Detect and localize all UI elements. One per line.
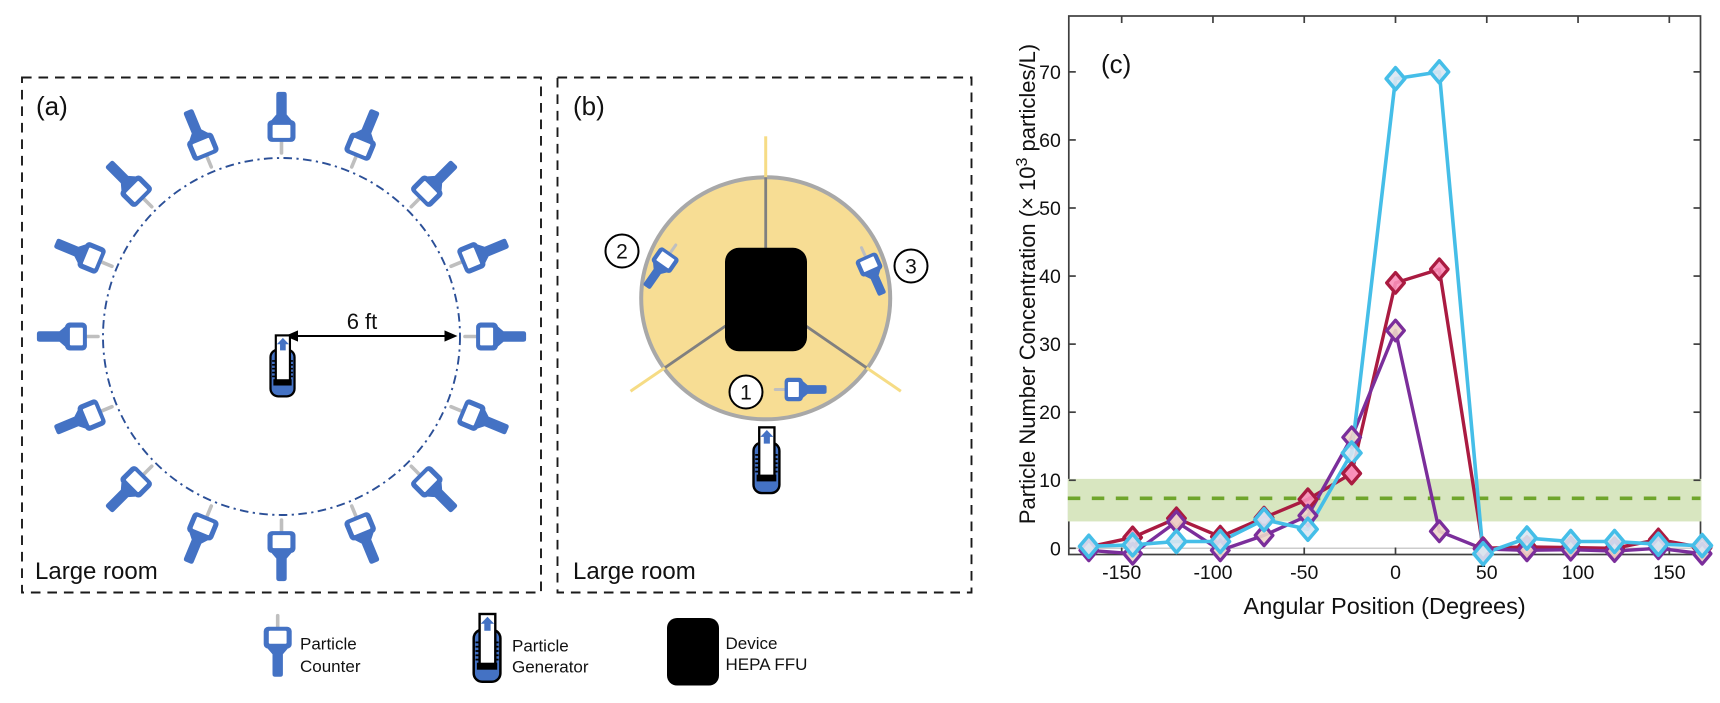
svg-text:(a): (a)	[36, 91, 68, 121]
svg-text:-50: -50	[1290, 562, 1318, 584]
svg-text:Large room: Large room	[35, 558, 158, 585]
svg-text:50: 50	[1476, 562, 1498, 584]
svg-text:3: 3	[905, 256, 917, 279]
svg-text:Angular Position (Degrees): Angular Position (Degrees)	[1244, 593, 1526, 619]
svg-text:-150: -150	[1102, 562, 1141, 584]
svg-text:6 ft: 6 ft	[347, 309, 378, 334]
svg-text:Particle Number Concentration: Particle Number Concentration (× 103 par…	[1014, 44, 1040, 524]
svg-text:1: 1	[740, 382, 752, 405]
svg-text:0: 0	[1050, 538, 1061, 560]
svg-text:0: 0	[1390, 562, 1401, 584]
svg-text:40: 40	[1039, 266, 1061, 288]
svg-text:-100: -100	[1193, 562, 1232, 584]
svg-text:70: 70	[1039, 62, 1061, 84]
svg-text:(b): (b)	[573, 91, 605, 121]
svg-text:20: 20	[1039, 402, 1061, 424]
svg-text:DeviceHEPA FFU: DeviceHEPA FFU	[726, 634, 808, 674]
svg-text:150: 150	[1653, 562, 1686, 584]
svg-text:ParticleCounter: ParticleCounter	[300, 635, 361, 677]
svg-text:Large room: Large room	[573, 558, 696, 585]
svg-text:10: 10	[1039, 470, 1061, 492]
svg-text:ParticleGenerator: ParticleGenerator	[512, 637, 589, 677]
svg-text:2: 2	[616, 241, 628, 264]
svg-text:(c): (c)	[1101, 49, 1131, 79]
svg-text:60: 60	[1039, 130, 1061, 152]
svg-text:100: 100	[1562, 562, 1595, 584]
svg-text:30: 30	[1039, 334, 1061, 356]
svg-text:50: 50	[1039, 198, 1061, 220]
